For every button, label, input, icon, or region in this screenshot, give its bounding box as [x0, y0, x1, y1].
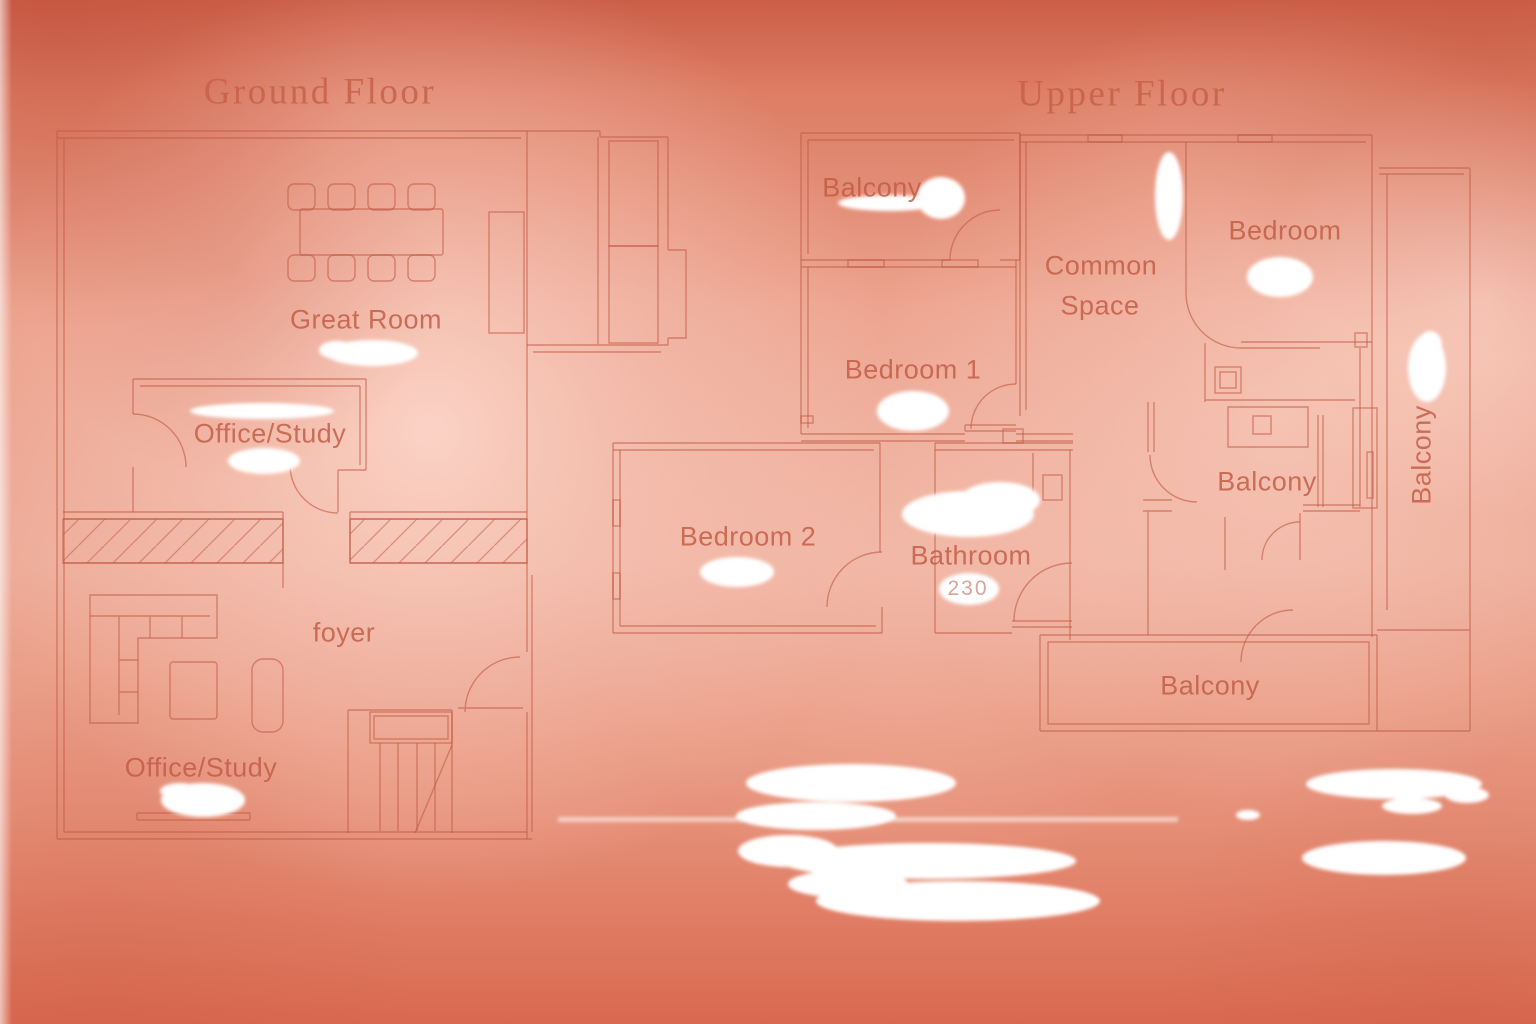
room-label-office-study-upper: Office/Study — [194, 419, 347, 450]
room-label-bedroom-1: Bedroom 1 — [845, 355, 982, 386]
floorplan-image: Ground Floor Upper Floor Great Room Offi… — [0, 0, 1536, 1024]
room-label-balcony-right: Balcony — [1407, 405, 1438, 505]
erased-dimension-remnant: 230 — [947, 577, 988, 601]
room-label-balcony-top: Balcony — [822, 173, 922, 204]
room-label-great-room: Great Room — [290, 305, 442, 336]
room-label-foyer: foyer — [313, 618, 376, 649]
floor-title-ground: Ground Floor — [204, 71, 436, 114]
room-label-bedroom-2: Bedroom 2 — [680, 522, 817, 553]
room-label-bathroom: Bathroom — [910, 541, 1031, 572]
room-label-bedroom: Bedroom — [1228, 216, 1341, 247]
floor-title-upper: Upper Floor — [1017, 73, 1226, 116]
room-label-balcony-middle: Balcony — [1217, 467, 1317, 498]
room-label-office-study-lower: Office/Study — [125, 753, 278, 784]
room-label-common-space-line1: Common — [1045, 251, 1158, 282]
room-label-balcony-bottom: Balcony — [1160, 671, 1260, 702]
room-label-common-space-line2: Space — [1060, 291, 1139, 322]
floorplan-drawing — [0, 0, 1536, 1024]
